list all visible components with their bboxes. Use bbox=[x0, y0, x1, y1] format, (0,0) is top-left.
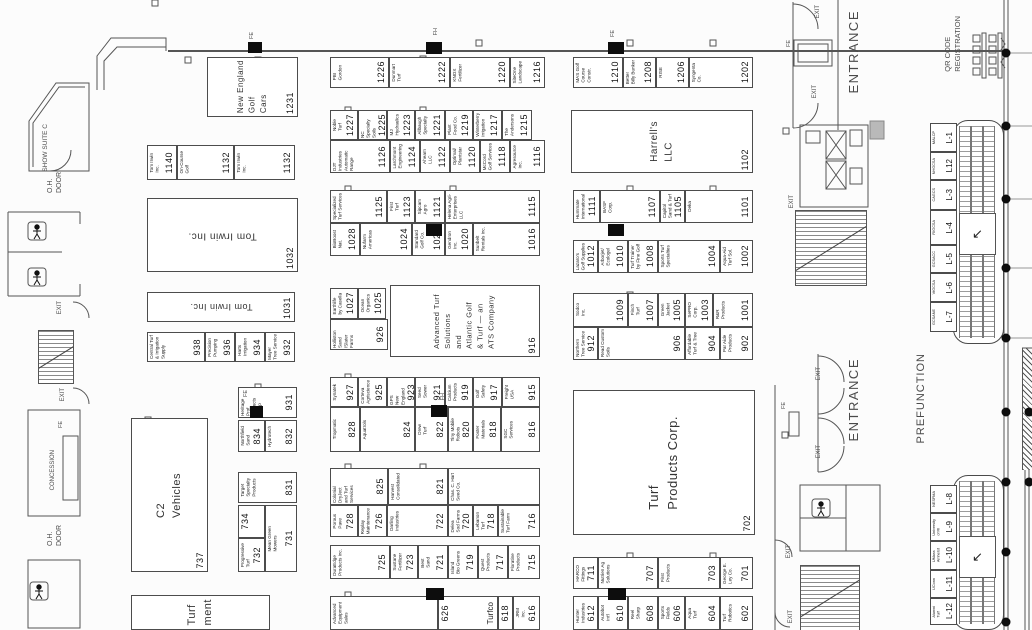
booth-726[interactable]: Replay Maintenance726 bbox=[358, 505, 387, 537]
fire-equipment-marker bbox=[608, 42, 624, 54]
elevator-x bbox=[826, 131, 846, 159]
booth-number: 1122 bbox=[437, 146, 448, 167]
label-fe: FE bbox=[249, 32, 256, 39]
booth-name: Noble Turf bbox=[332, 119, 343, 131]
booth-number: 1222 bbox=[437, 61, 448, 83]
booth-name: New England Golf Cars bbox=[235, 60, 270, 113]
booth-1032[interactable]: Tom Irwin Inc.1032 bbox=[147, 198, 298, 272]
booth-717[interactable]: Quest Products717 bbox=[478, 545, 508, 579]
booth-number: 1225 bbox=[377, 114, 387, 136]
booth-831[interactable]: Target Specialty Products831 bbox=[238, 472, 297, 503]
booth-926[interactable]: Holliston Sand /Slater Farms926 bbox=[330, 319, 388, 350]
escalator-cab: ↙ bbox=[959, 536, 996, 578]
booth-number: 822 bbox=[435, 421, 446, 438]
booth-name: VtGCSA bbox=[932, 280, 937, 294]
booth-number: 1231 bbox=[285, 92, 296, 114]
booth-834[interactable]: Northfield Sand834 bbox=[238, 420, 265, 452]
booth-1005[interactable]: Green Jacket1005 bbox=[658, 293, 685, 327]
booth-1217[interactable]: Winterberry Irrigation1217 bbox=[473, 110, 502, 140]
booth-number: 1140 bbox=[164, 152, 175, 173]
booth-number: 916 bbox=[527, 337, 538, 354]
booth-1102[interactable]: Harrell's LLC1102 bbox=[571, 110, 753, 173]
booth-919[interactable]: Calcium Products919 bbox=[445, 377, 473, 407]
booth-number: 821 bbox=[435, 478, 446, 495]
booth-name: Capitol Sand & Turf bbox=[662, 194, 673, 218]
booth-1215[interactable]: The Andersons1215 bbox=[502, 110, 532, 140]
label-fh: FH bbox=[440, 393, 447, 400]
booth-906[interactable]: Read Custom Soils906 bbox=[598, 327, 685, 360]
booth-1216[interactable]: SiteOne Landscape1216 bbox=[510, 57, 545, 88]
booth-name: NC Specialty Soils bbox=[360, 112, 377, 138]
label-exit: EXIT bbox=[816, 445, 824, 458]
booth-1004[interactable]: Sports Turf Specialties1004 bbox=[658, 240, 720, 273]
booth-l-4[interactable]: RIGCSAL-4 bbox=[930, 210, 957, 245]
booth-l-3[interactable]: CAGCSL-3 bbox=[930, 180, 957, 210]
booth-name: Porous Pave bbox=[332, 514, 343, 529]
booth-name: SiteOne Landscape bbox=[512, 61, 523, 83]
booth-1024[interactable]: Nufarm Americas1024 bbox=[360, 223, 412, 256]
booth-name: Hummate International bbox=[575, 194, 586, 219]
booth-l-9[interactable]: University of RIL-9 bbox=[930, 513, 957, 541]
escalator-cab: ↙ bbox=[959, 213, 996, 255]
booth-name: Hydrotech bbox=[267, 426, 273, 447]
booth-1020[interactable]: Gendron Inc.1020 bbox=[445, 223, 473, 256]
booth-734[interactable]: 734 bbox=[238, 505, 265, 538]
booth-name: Northfield Sand bbox=[240, 426, 251, 446]
booth-number: L-9 bbox=[945, 521, 955, 533]
booth-1008[interactable]: Turf Trainer by Fine Golf1008 bbox=[628, 240, 658, 273]
booth-l-10[interactable]: UMass AmherstL-10 bbox=[930, 541, 957, 570]
booth-name: Alumni Turf bbox=[932, 606, 941, 618]
booth-name: George E. Ley Co. bbox=[722, 563, 733, 584]
booth-732[interactable]: Progressive Turf732 bbox=[238, 538, 265, 572]
booth-turf-ment[interactable]: Turf ment bbox=[131, 595, 270, 630]
elevator-lobby bbox=[850, 168, 862, 184]
booth-1123[interactable]: First Turf1123 bbox=[387, 190, 415, 223]
booth-1003[interactable]: SePRO Corp.1003 bbox=[685, 293, 713, 327]
booth-number: 1020 bbox=[460, 228, 471, 250]
door-arc bbox=[73, 302, 89, 404]
booth-name: Nutrien Ag Solutions bbox=[600, 562, 611, 583]
fe-cabinet bbox=[789, 412, 799, 436]
booth-name: Tiny Mobile Robots bbox=[450, 418, 461, 441]
booth-832[interactable]: Hydrotech832 bbox=[265, 420, 297, 452]
booth-name: RISE bbox=[658, 67, 664, 78]
booth-name: Seed Sower bbox=[417, 385, 428, 398]
booth-702[interactable]: Turf Products Corp.702 bbox=[573, 390, 755, 535]
booth-1010[interactable]: Arborjet/ Ecologel1010 bbox=[598, 240, 628, 273]
booth-name: Floratine Products bbox=[510, 553, 521, 571]
booth-advanced-equipment-sales[interactable]: Advanced Equipment Sales bbox=[330, 596, 438, 630]
booth-name: JRM Inc. bbox=[515, 608, 526, 617]
booth-612[interactable]: Hunter Industries612 bbox=[573, 596, 598, 630]
booth-number: 925 bbox=[374, 384, 385, 401]
booth-number: 716 bbox=[527, 513, 538, 530]
label-fe: FE bbox=[786, 40, 793, 47]
booth-606[interactable]: Sports Fields606 bbox=[658, 596, 685, 630]
booth-number: 1223 bbox=[402, 114, 413, 136]
booth-616[interactable]: JRM Inc.616 bbox=[513, 596, 540, 630]
booth-name: Calcium Products bbox=[447, 383, 458, 401]
booth-name: GCSACC bbox=[932, 251, 937, 267]
booth-1120[interactable]: Optimal/ Plantstar1120 bbox=[450, 140, 480, 173]
booth-number: 707 bbox=[645, 565, 656, 582]
booth-number: L-7 bbox=[945, 311, 955, 323]
booth-name: Winterberry Irrigation bbox=[475, 113, 486, 137]
restroom-right-partition bbox=[800, 485, 846, 551]
booth-name: Agresource Inc. bbox=[512, 145, 523, 169]
booth-1223[interactable]: MJ Hydraulics1223 bbox=[387, 110, 415, 140]
booth-l-1[interactable]: MALCPL-1 bbox=[930, 123, 957, 152]
booth-name: Northern Tree Service bbox=[575, 331, 586, 357]
booth-number: 1102 bbox=[740, 149, 751, 170]
label-exit: EXIT bbox=[816, 367, 824, 380]
booth-602[interactable]: Turf Robotics602 bbox=[720, 596, 753, 630]
structural-column bbox=[1002, 408, 1011, 417]
booth-1009[interactable]: Sodco Inc.1009 bbox=[573, 293, 628, 327]
booth-711[interactable]: HARCO Fittings711 bbox=[573, 557, 598, 589]
booth-828[interactable]: Tropmatic828 bbox=[330, 407, 360, 452]
booth-722[interactable]: Darling Industries722 bbox=[387, 505, 448, 537]
escalator-lower: ↙ bbox=[953, 475, 1004, 630]
fire-equipment-marker bbox=[426, 42, 442, 54]
booth-name: Central Turf & Irrigation Supply bbox=[149, 335, 166, 359]
booth-1208[interactable]: Better Billy Bunker1208 bbox=[623, 57, 656, 88]
booth-name: RIGCSA bbox=[932, 220, 937, 235]
structural-column bbox=[1002, 618, 1011, 627]
booth-925[interactable]: Corteva Agriscience925 bbox=[358, 377, 387, 407]
booth-715[interactable]: Floratine Products715 bbox=[508, 545, 540, 579]
booth-name: BioBoost Nat. bbox=[332, 230, 343, 248]
booth-1028[interactable]: BioBoost Nat.1028 bbox=[330, 223, 360, 256]
label-o-h-door: O.H. DOOR bbox=[46, 525, 64, 546]
booth-1027[interactable]: Earthlife by Casella1027 bbox=[330, 288, 358, 319]
booth-number: 737 bbox=[195, 552, 206, 569]
booth-number: 702 bbox=[742, 515, 753, 532]
booth-number: 1121 bbox=[432, 196, 443, 217]
booth-name: Mayer Tree Service bbox=[267, 334, 278, 360]
booth-l12[interactable]: NHGCSAL12 bbox=[930, 152, 957, 180]
booth-1031[interactable]: Tom Irwin Inc.1031 bbox=[147, 292, 295, 322]
booth-name: Ocean Organics bbox=[360, 294, 371, 312]
booth-number: 734 bbox=[240, 513, 251, 530]
booth-1219[interactable]: Plant Food Co.1219 bbox=[445, 110, 473, 140]
booth-name: Ahearn LLC bbox=[422, 149, 433, 164]
booth-1016[interactable]: Sunbelt Rentals Inc.1016 bbox=[473, 223, 540, 256]
booth-703[interactable]: First Products703 bbox=[658, 557, 720, 589]
booth-1140[interactable]: Tom Irwin Inc.1140 bbox=[147, 145, 177, 180]
escalator-arrow-icon: ↙ bbox=[972, 549, 983, 565]
door-arc bbox=[50, 150, 71, 171]
booth-number: 824 bbox=[402, 421, 413, 438]
booth-number: L-6 bbox=[945, 282, 955, 294]
booth-number: 1105 bbox=[673, 196, 684, 217]
booth-816[interactable]: SGC Services816 bbox=[501, 407, 540, 452]
booth-number: 723 bbox=[405, 554, 416, 571]
booth-name: Target Specialty Products bbox=[240, 478, 257, 497]
elevator-bank bbox=[800, 125, 868, 207]
booth-name: First Products bbox=[660, 564, 671, 582]
booth-719[interactable]: Island Bio Greens719 bbox=[448, 545, 478, 579]
booth-name: Affordable Turf & Tree bbox=[687, 332, 698, 355]
booth-name: Hunter Industries bbox=[575, 603, 586, 623]
booth-936[interactable]: Precision Pumping936 bbox=[205, 332, 235, 362]
booth-1124[interactable]: Larchmont Engineering1124 bbox=[390, 140, 420, 173]
structural-column bbox=[1025, 478, 1032, 487]
booth-l-8[interactable]: NESFMAL-8 bbox=[930, 485, 957, 513]
structural-column bbox=[1002, 195, 1011, 204]
booth-number: 1010 bbox=[615, 245, 626, 267]
booth-1210[interactable]: MAS Golf Course Constr.1210 bbox=[573, 57, 623, 88]
booth-number: 725 bbox=[377, 554, 388, 571]
booth-number: L-12 bbox=[945, 603, 955, 619]
booth-824[interactable]: Aquatrols824 bbox=[360, 407, 415, 452]
booth-number: 1215 bbox=[519, 114, 530, 136]
booth-name: Progressive Turf bbox=[240, 543, 251, 567]
booth-720[interactable]: Delea Sod Farms720 bbox=[448, 505, 473, 537]
elevator-lobby bbox=[850, 130, 862, 146]
booth-917[interactable]: Golf Safety917 bbox=[473, 377, 502, 407]
booth-number: 1132 bbox=[282, 152, 293, 173]
booth-1012[interactable]: Lazaro's Golf Supplies1012 bbox=[573, 240, 598, 273]
booth-737[interactable]: C2 Vehicles737 bbox=[131, 418, 208, 572]
booth-707[interactable]: Nutrien Ag Solutions707 bbox=[598, 557, 658, 589]
booth-1125[interactable]: Specialized Turf Services1125 bbox=[330, 190, 387, 223]
booth-name: Harvest Consolidated bbox=[390, 473, 401, 500]
booth-name: Turfco bbox=[486, 602, 496, 624]
booth-name: Aqua-Aid Turf Sol. bbox=[722, 247, 733, 266]
booth-number: 1115 bbox=[527, 196, 538, 217]
booth-number: 1008 bbox=[645, 245, 656, 267]
booth-915[interactable]: Freight USA915 bbox=[502, 377, 540, 407]
booth-902[interactable]: Par Aide Products902 bbox=[720, 327, 753, 360]
booth-725[interactable]: DuraEdge Products Inc.725 bbox=[330, 545, 390, 579]
label-exit: EXIT bbox=[789, 195, 797, 208]
booth-1227[interactable]: Noble Turf1227 bbox=[330, 110, 358, 140]
booth-904[interactable]: Affordable Turf & Tree904 bbox=[685, 327, 720, 360]
booth-number: 1202 bbox=[740, 61, 751, 83]
booth-912[interactable]: Northern Tree Service912 bbox=[573, 327, 598, 360]
booth-number: 610 bbox=[615, 605, 626, 622]
booth-921[interactable]: Seed Sower921 bbox=[415, 377, 445, 407]
booth-name: Chas. C. Hart Seed Co. bbox=[450, 473, 461, 501]
booth-716[interactable]: Sustainable Turf Farm716 bbox=[498, 505, 540, 537]
fire-equipment-marker bbox=[608, 588, 626, 600]
booth-name: Standard Golf Co. bbox=[414, 230, 425, 249]
booth-name: Precision Pumping bbox=[207, 338, 218, 357]
booth-1231[interactable]: New England Golf Cars1231 bbox=[207, 57, 298, 117]
booth-number: 1009 bbox=[615, 299, 626, 321]
booth-923[interactable]: GPS New England923 bbox=[387, 377, 415, 407]
booth-1206[interactable]: RISE1206 bbox=[656, 57, 689, 88]
booth-number: 1217 bbox=[489, 114, 500, 136]
booth-l-6[interactable]: VtGCSAL-6 bbox=[930, 273, 957, 302]
booth-701[interactable]: George E. Ley Co.701 bbox=[720, 557, 753, 589]
booth-731[interactable]: Mean Green Mowers731 bbox=[265, 505, 297, 572]
show-suite-c-walls bbox=[29, 83, 89, 171]
booth-1222[interactable]: Dunmart Turf1222 bbox=[389, 57, 450, 88]
booth-1111[interactable]: Hummate International1111 bbox=[573, 190, 600, 223]
label-fe: FE bbox=[58, 421, 65, 428]
booth-721[interactable]: Best Sand721 bbox=[418, 545, 448, 579]
booth-1221[interactable]: Allbaugh Specialty1221 bbox=[415, 110, 445, 140]
booth-820[interactable]: Tiny Mobile Robots820 bbox=[448, 407, 473, 452]
booth-number: 828 bbox=[347, 421, 358, 438]
booth-name: C2 Vehicles bbox=[154, 473, 186, 518]
booth-number: 1001 bbox=[740, 299, 751, 321]
booth-name: Darling Industries bbox=[389, 511, 400, 531]
booth-number: 612 bbox=[586, 605, 597, 622]
booth-name: Colonial DryJect and Turf Services bbox=[332, 470, 355, 503]
booth-1202[interactable]: Syngenta Co.1202 bbox=[689, 57, 753, 88]
booth-1007[interactable]: Finch Turf1007 bbox=[628, 293, 658, 327]
booth-825[interactable]: Colonial DryJect and Turf Services825 bbox=[330, 468, 388, 505]
escalator-upper: ↙ bbox=[953, 120, 1004, 344]
booth-1132[interactable]: On-Course Golf1132 bbox=[177, 145, 234, 180]
booth-name: Helena Agri- Enterprises LLC bbox=[447, 194, 464, 219]
booth-name: Aquatrols bbox=[362, 420, 368, 439]
booth-name: Lazaro's Golf Supplies bbox=[575, 243, 586, 270]
booth-number: 1219 bbox=[460, 114, 471, 136]
booth-1001[interactable]: R&R Products1001 bbox=[713, 293, 753, 327]
booth-1115[interactable]: Helena Agri- Enterprises LLC1115 bbox=[445, 190, 540, 223]
booth-608[interactable]: Reel Sharp608 bbox=[628, 596, 658, 630]
booth-name: DuraEdge Products Inc. bbox=[332, 549, 343, 576]
label-fe: FE bbox=[610, 30, 617, 37]
booth-number: 1118 bbox=[497, 146, 508, 167]
booth-name: DJT Industries Automatic Range bbox=[332, 142, 355, 171]
booth-1225[interactable]: NC Specialty Soils1225 bbox=[358, 110, 387, 140]
booth-1220[interactable]: KNOX Fertilizer1220 bbox=[450, 57, 510, 88]
structural-column bbox=[1025, 408, 1032, 417]
booth-number: 1031 bbox=[282, 297, 293, 319]
booth-718[interactable]: Lebanon Turf718 bbox=[473, 505, 498, 537]
booth-604[interactable]: Aqua Turf604 bbox=[685, 596, 720, 630]
booth-1126[interactable]: DJT Industries Automatic Range1126 bbox=[330, 140, 390, 173]
booth-1107[interactable]: BASF Corp.1107 bbox=[600, 190, 660, 223]
booth-618[interactable]: 618 bbox=[498, 596, 513, 630]
booth-1002[interactable]: Aqua-Aid Turf Sol.1002 bbox=[720, 240, 753, 273]
booth-number: 816 bbox=[527, 421, 538, 438]
booth-number: 936 bbox=[222, 339, 233, 356]
booth-1121[interactable]: Sipcam Agro1121 bbox=[415, 190, 445, 223]
stairs-right-top bbox=[795, 210, 867, 286]
booth-932[interactable]: Mayer Tree Service932 bbox=[265, 332, 295, 362]
booth-name: UMass Amherst bbox=[932, 548, 941, 562]
booth-610[interactable]: Autobot Int'l610 bbox=[598, 596, 628, 630]
label-entrance: ENTRANCE bbox=[846, 10, 863, 94]
booth-name: Finch Turf bbox=[630, 304, 641, 315]
booth-number: 720 bbox=[461, 513, 472, 530]
restroom-bottom-left-walls bbox=[28, 560, 80, 628]
wall-funnel bbox=[97, 38, 166, 90]
booth-number: 701 bbox=[740, 565, 751, 582]
booth-1132[interactable]: Tom Irwin Inc.1132 bbox=[234, 145, 295, 180]
booth-number: L-8 bbox=[945, 493, 955, 505]
booth-number: 1124 bbox=[407, 146, 418, 167]
booth-number: 926 bbox=[375, 326, 386, 343]
booth-number: 728 bbox=[345, 513, 356, 530]
booth-number: 732 bbox=[252, 547, 263, 564]
label-o-h-door: O.H. DOOR bbox=[46, 172, 64, 193]
booth-1116[interactable]: Agresource Inc.1116 bbox=[510, 140, 545, 173]
booth-number: 932 bbox=[282, 339, 293, 356]
booth-1025[interactable]: Ocean Organics1025 bbox=[358, 288, 386, 319]
label-exit: EXIT bbox=[60, 388, 68, 401]
booth-name: Reel Sharp bbox=[630, 607, 641, 619]
booth-927[interactable]: Synatek927 bbox=[330, 377, 358, 407]
booth-1226[interactable]: PBI Gordon1226 bbox=[330, 57, 389, 88]
booth-938[interactable]: Central Turf & Irrigation Supply938 bbox=[147, 332, 205, 362]
booth-728[interactable]: Porous Pave728 bbox=[330, 505, 358, 537]
booth-number: 832 bbox=[284, 428, 295, 445]
booth-number: 1123 bbox=[402, 196, 413, 217]
booth-l-5[interactable]: GCSACCL-5 bbox=[930, 245, 957, 273]
booth-number: 820 bbox=[461, 421, 472, 438]
booth-number: 719 bbox=[465, 554, 476, 571]
booth-number: L-10 bbox=[945, 547, 955, 563]
booth-name: On-Course Golf bbox=[179, 151, 190, 173]
booth-723[interactable]: Sustane Fertilizer723 bbox=[390, 545, 418, 579]
booth-626[interactable]: Turfco626 bbox=[438, 596, 498, 630]
booth-number: 703 bbox=[707, 565, 718, 582]
booth-name: Quest Products bbox=[480, 553, 491, 571]
booth-l-12[interactable]: Alumni TurfL-12 bbox=[930, 598, 957, 625]
booth-l-7[interactable]: GCSANEL-7 bbox=[930, 302, 957, 332]
booth-name: Turf Products Corp. bbox=[645, 416, 683, 510]
column-block bbox=[870, 121, 884, 139]
booth-1105[interactable]: Capitol Sand & Turf1105 bbox=[660, 190, 685, 223]
booth-934[interactable]: Harts Irrigation934 bbox=[235, 332, 265, 362]
booth-name: CAGCS bbox=[932, 188, 937, 202]
booth-number: 1032 bbox=[285, 247, 296, 269]
booth-number: 1003 bbox=[700, 299, 711, 321]
booth-916[interactable]: Advanced Turf Solutions and Atlantic Gol… bbox=[390, 285, 540, 357]
booth-821[interactable]: Harvest Consolidated821 bbox=[388, 468, 448, 505]
booth-number: 711 bbox=[586, 565, 597, 581]
booth-number: 722 bbox=[435, 513, 446, 530]
booth-number: 731 bbox=[284, 530, 295, 547]
elevator-lobby bbox=[806, 131, 820, 143]
booth-name: Turf Trainer by Fine Golf bbox=[630, 244, 641, 269]
escalator-arrow-icon: ↙ bbox=[972, 226, 983, 242]
booth-number: 938 bbox=[192, 339, 203, 356]
booth-818[interactable]: Foster Materials818 bbox=[473, 407, 501, 452]
booth-l-11[interactable]: UConnL-11 bbox=[930, 570, 957, 598]
booth-number: 1208 bbox=[643, 61, 654, 83]
booth-number: 1012 bbox=[586, 245, 597, 267]
booth-name: Sodco Inc. bbox=[575, 303, 586, 316]
structural-column bbox=[1002, 548, 1011, 557]
label-show-suite-c: SHOW SUITE C bbox=[42, 124, 50, 172]
booth-name: Specialized Turf Services bbox=[332, 193, 343, 220]
booth-1101[interactable]: Deka1101 bbox=[685, 190, 753, 223]
booth-1118[interactable]: McCord Golf Services1118 bbox=[480, 140, 510, 173]
booth-name: First Turf bbox=[389, 202, 400, 211]
booth-name: KNOX Fertilizer bbox=[452, 64, 463, 82]
booth-1122[interactable]: Ahearn LLC1122 bbox=[420, 140, 450, 173]
wall-stubs bbox=[1008, 53, 1032, 338]
booth-number: 616 bbox=[527, 605, 538, 622]
label-entrance: ENTRANCE bbox=[846, 358, 863, 442]
booth-number: 715 bbox=[527, 554, 538, 571]
fire-equipment-marker bbox=[431, 405, 447, 417]
booth-number: 825 bbox=[375, 478, 386, 495]
booth-name: MAS Golf Course Constr. bbox=[575, 63, 592, 83]
booth-number: 1210 bbox=[610, 61, 621, 83]
booth-number: 1101 bbox=[740, 196, 751, 217]
booth-chas-c-hart-seed-co[interactable]: Chas. C. Hart Seed Co. bbox=[448, 468, 540, 505]
